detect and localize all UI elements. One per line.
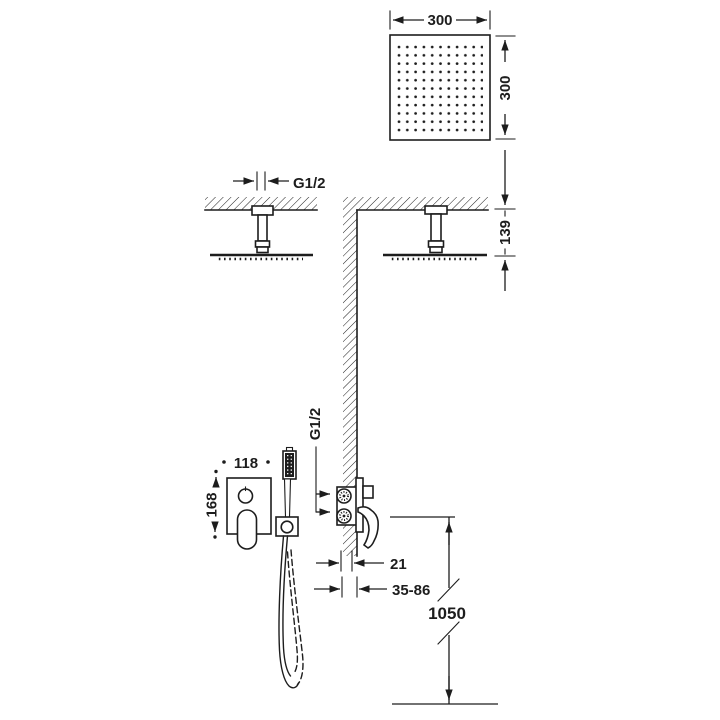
technical-drawing-page: 300 300 G1/2: [0, 0, 720, 720]
diverter-knob-side: [363, 486, 373, 498]
dimension-head-width: 300: [390, 11, 490, 29]
dim-dot-bottom: [213, 535, 216, 538]
dim-label-head-width: 300: [427, 12, 452, 29]
inlet-union-bottom-center: [343, 515, 346, 518]
arm-collar: [256, 241, 270, 247]
hose-outer-front: [279, 536, 299, 688]
ceiling-flange: [252, 206, 273, 215]
dim-label-inlet-thread: G1/2: [307, 408, 324, 441]
shower-arm-pipe: [258, 215, 267, 241]
dim-label-plate-height: 168: [204, 492, 221, 517]
diverter-knob-front: [239, 489, 253, 503]
inlet-thread-callout: G1/2: [307, 408, 330, 512]
arm-cone: [257, 247, 268, 253]
ceiling-hatch-right: [343, 197, 488, 210]
shower-installation-diagram: 300 300 G1/2: [0, 0, 720, 720]
dim-label-wall-min: 21: [390, 556, 407, 573]
dimension-plate-height: 168: [204, 470, 221, 539]
handshower-assembly: [276, 448, 303, 688]
dimension-head-depth: 300: [496, 36, 515, 139]
bracket-socket: [281, 521, 293, 533]
handshower-head-face: [285, 453, 294, 477]
dim-dot-top: [214, 470, 217, 473]
dimension-ceiling-drop: 139: [495, 150, 515, 291]
dimension-plate-width: 118: [222, 455, 270, 472]
dim-label-wall-range: 35-86: [392, 582, 430, 599]
ceiling-section-front: G1/2: [205, 172, 326, 259]
wall-section-side: [343, 197, 488, 556]
dim-dot-right: [266, 460, 270, 464]
mixer-side-view: G1/2: [307, 408, 378, 548]
dim-label-ceiling-drop: 139: [497, 220, 514, 245]
dimension-wall-range: 35-86: [314, 577, 430, 599]
arm-cone-side: [430, 247, 442, 253]
shower-arm-pipe-side: [431, 214, 441, 241]
handshower-handle: [285, 479, 291, 517]
hose-inner-front: [283, 536, 291, 676]
dim-label-head-depth: 300: [497, 75, 514, 100]
hose-outer-back: [291, 550, 303, 685]
inlet-union-top-center: [343, 495, 346, 498]
spray-nozzle-grid: [395, 43, 483, 133]
dim-label-hose-length: 1050: [428, 604, 466, 623]
mixer-front-view: 118 168: [204, 455, 272, 549]
dimension-ceiling-thread: G1/2: [233, 172, 326, 192]
dimension-hose-length: 1050: [390, 517, 498, 704]
arm-collar-side: [429, 241, 444, 247]
dim-label-plate-width: 118: [234, 455, 258, 472]
dim-dot-left: [222, 460, 226, 464]
dim-label-ceiling-thread: G1/2: [293, 175, 326, 192]
ceiling-flange-side: [425, 206, 447, 214]
mixer-trim-plate-side: [356, 478, 363, 532]
showerhead-top-view: 300 300: [390, 11, 515, 140]
mixer-lever-front: [238, 510, 257, 549]
dimension-wall-min: 21: [316, 551, 407, 573]
